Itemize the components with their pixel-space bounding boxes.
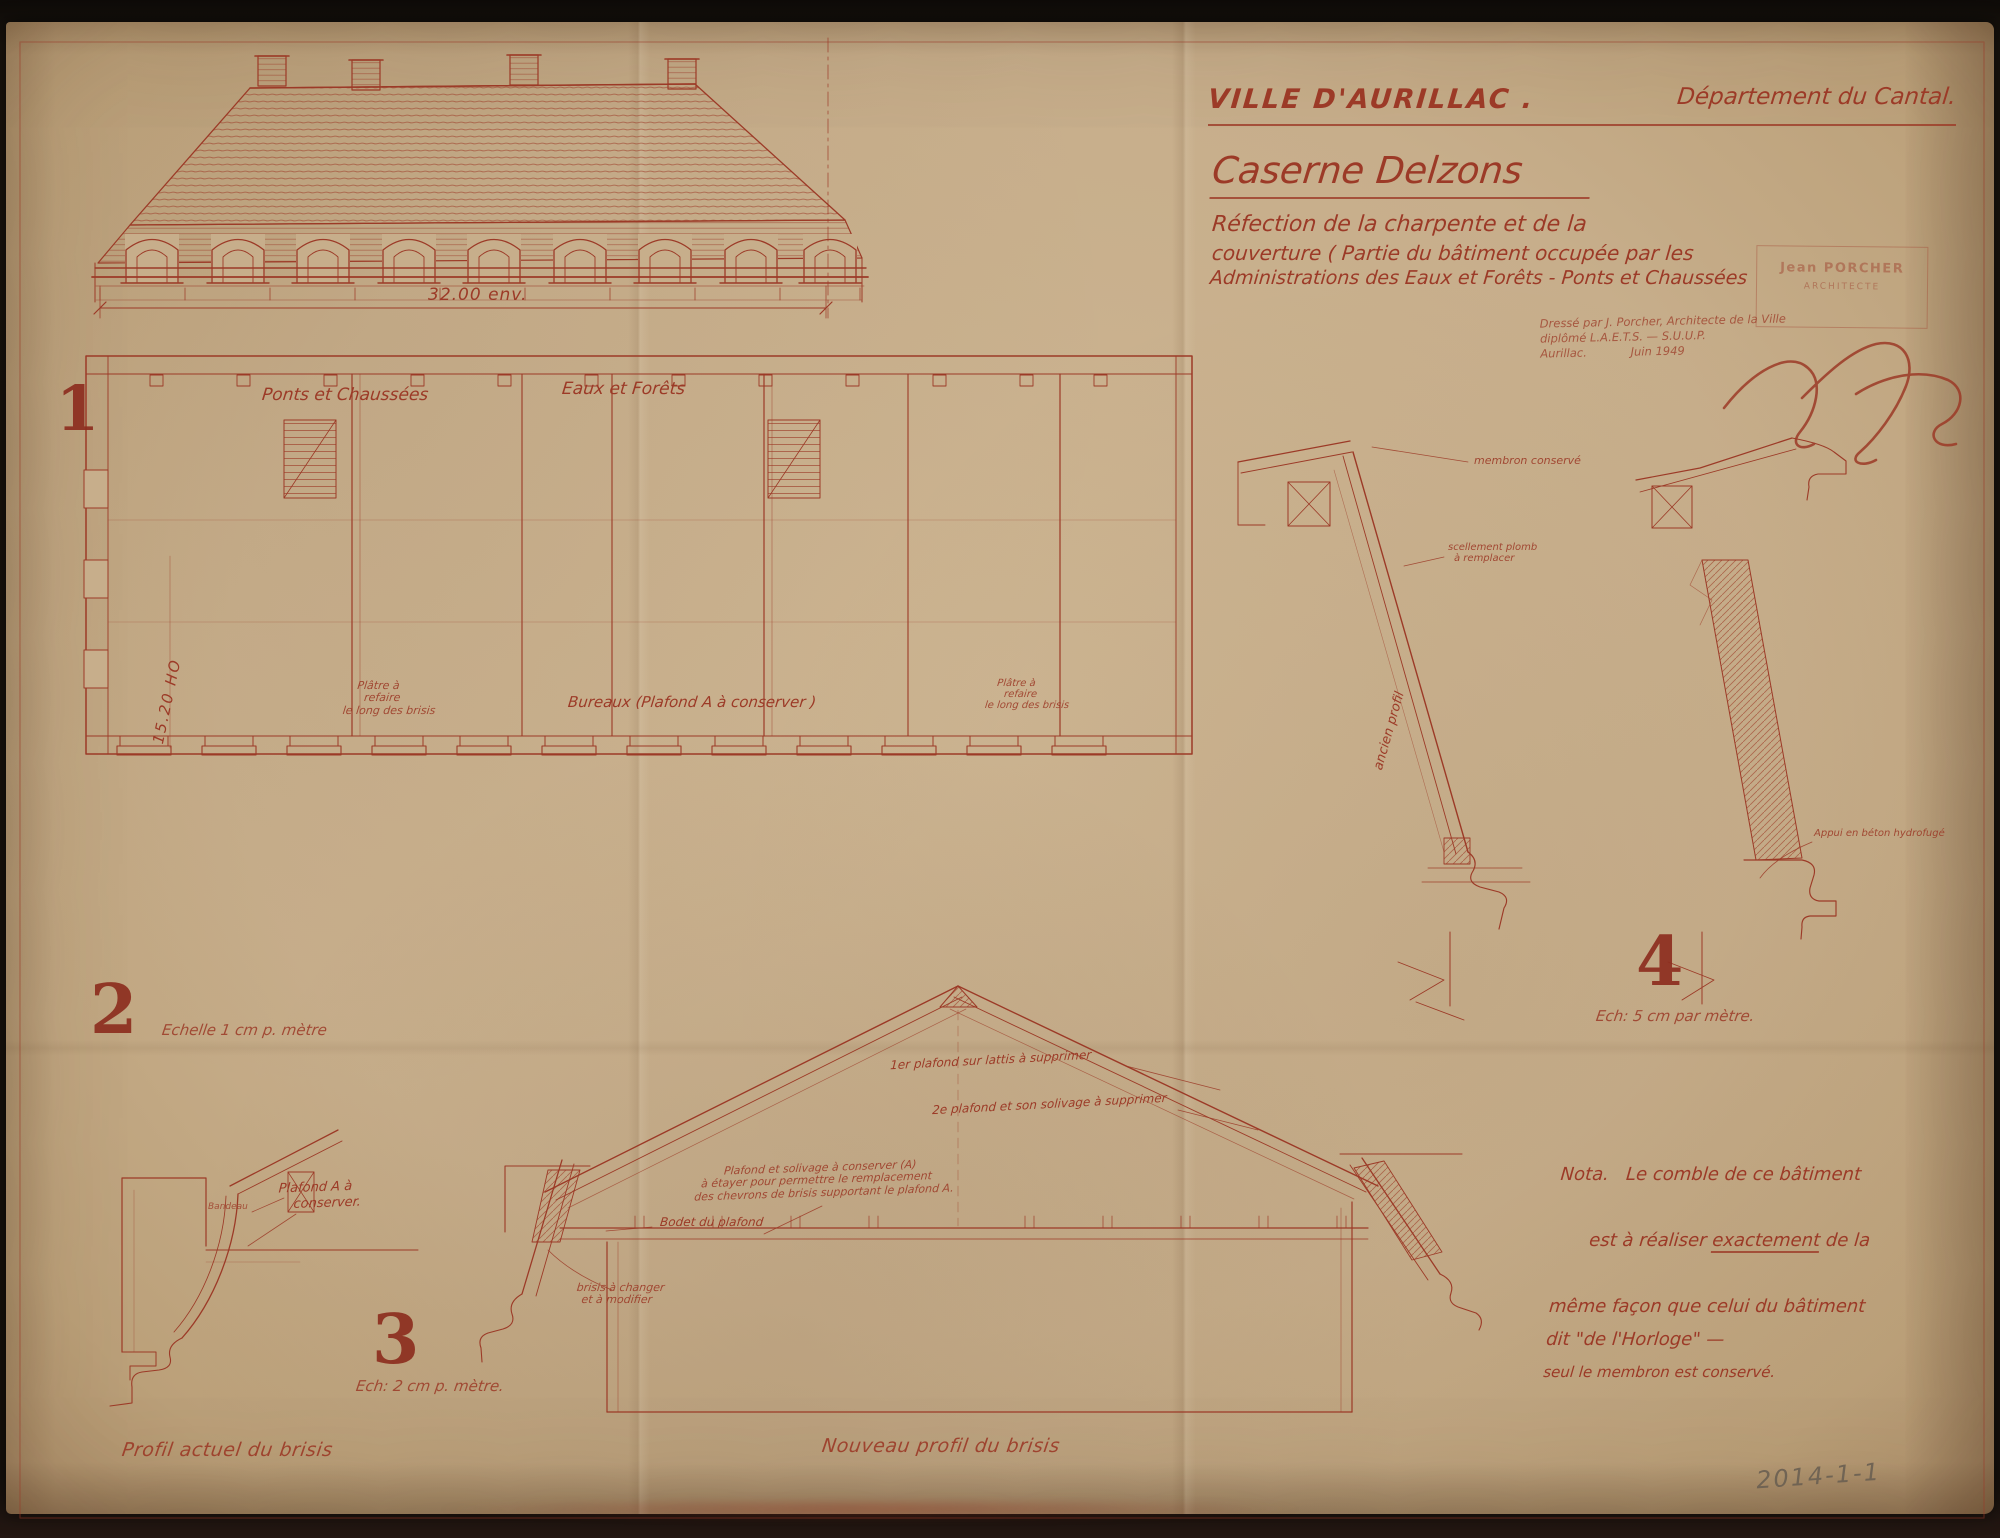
room-label-bureaux: Bureaux (Plafond A à conserver ) xyxy=(567,694,817,711)
title-line: VILLE D'AURILLAC . Département du Cantal… xyxy=(1208,84,1956,126)
figure-4-scale: Ech: 5 cm par mètre. xyxy=(1595,1008,1756,1025)
nota-block: Nota. Le comble de ce bâtiment est à réa… xyxy=(1542,1158,1878,1389)
caption-profil-actuel: Profil actuel du brisis xyxy=(120,1440,334,1462)
figure-1-number: 1 xyxy=(56,378,99,440)
nota-line-4: dit "de l'Horloge" — xyxy=(1545,1323,1864,1356)
bodet-label: Bodet du plafond xyxy=(659,1216,764,1230)
architect-stamp: Jean PORCHER ARCHITECTE xyxy=(1756,245,1929,329)
appui-label: Appui en béton hydrofugé xyxy=(1814,828,1945,839)
figure-2-scale: Echelle 1 cm p. mètre xyxy=(161,1022,328,1039)
platre-note-left: Plâtre à refaire le long des brisis xyxy=(354,680,439,717)
length-dimension: 32.00 env. xyxy=(428,286,527,306)
zone-label-eaux: Eaux et Forêts xyxy=(561,380,686,400)
stamp-title: ARCHITECTE xyxy=(1757,281,1927,293)
page-title: VILLE D'AURILLAC . xyxy=(1207,84,1536,115)
zone-label-ponts: Ponts et Chaussées xyxy=(261,386,429,406)
nota-line-2: est à réaliser exactement de la xyxy=(1551,1191,1876,1290)
nota-line-3: même façon que celui du bâtiment xyxy=(1548,1290,1867,1323)
credit-block: Dressé par J. Porcher, Architecte de la … xyxy=(1540,311,1787,361)
plomb-label: scellement plomb à remplacer xyxy=(1448,542,1537,564)
brisis-change-label: brisis à changer et à modifier xyxy=(575,1282,665,1307)
subtitle-line-1: Réfection de la charpente et de la xyxy=(1211,212,1588,237)
bandeau-label: Bandeau xyxy=(208,1202,248,1212)
stamp-name: Jean PORCHER xyxy=(1757,260,1927,277)
project-title: Caserne Delzons xyxy=(1212,150,1592,199)
figure-3-scale: Ech: 2 cm p. mètre. xyxy=(355,1378,505,1395)
platre-note-right: Plâtre à refaire le long des brisis xyxy=(994,678,1072,712)
subtitle-line-3: Administrations des Eaux et Forêts - Pon… xyxy=(1209,268,1748,290)
nota-line-5: seul le membron est conservé. xyxy=(1542,1356,1861,1389)
nota-line-1: Nota. Le comble de ce bâtiment xyxy=(1559,1158,1878,1191)
drawing-sheet: VILLE D'AURILLAC . Département du Cantal… xyxy=(0,0,2000,1538)
plafond-a-label: Plafond A à conserver. xyxy=(277,1178,363,1214)
subtitle-line-2: couverture ( Partie du bâtiment occupée … xyxy=(1211,242,1695,265)
membron-label: membron conservé xyxy=(1474,455,1581,467)
figure-2-number: 2 xyxy=(90,976,137,1044)
figure-4-number: 4 xyxy=(1636,928,1683,996)
caption-nouveau-profil: Nouveau profil du brisis xyxy=(820,1436,1061,1458)
department-label: Département du Cantal. xyxy=(1676,84,1958,115)
figure-3-number: 3 xyxy=(372,1306,419,1374)
